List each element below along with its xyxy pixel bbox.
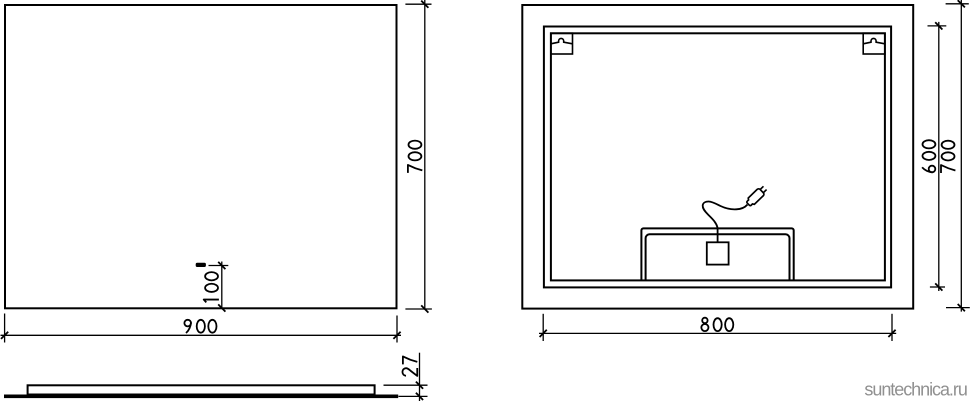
svg-text:suntechnica.ru: suntechnica.ru: [864, 379, 966, 399]
